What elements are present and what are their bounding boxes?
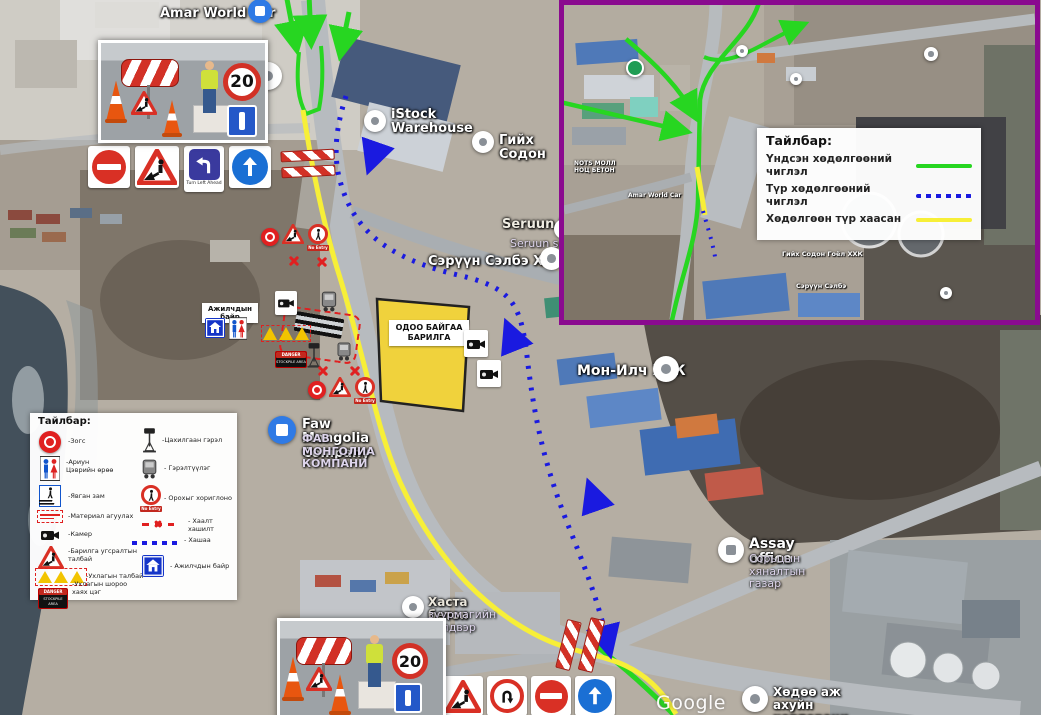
generator-icon <box>336 341 352 361</box>
poi-seruun-selbe-mn[interactable]: Сэрүүн Сэлбэ ХХК <box>428 250 564 269</box>
speed-limit-sign: 20 <box>223 63 261 101</box>
camera-icon <box>464 330 488 357</box>
legend-label: -Явган зам <box>68 493 105 501</box>
inset-poi-label: Гийх Содон Гоёл ХХК <box>782 251 863 258</box>
roadworks-sign <box>443 676 483 715</box>
workers-quarters-icon <box>142 555 164 577</box>
legend-label: -Камер <box>68 531 92 539</box>
worker-head <box>205 61 214 70</box>
flagger-worker <box>366 635 383 687</box>
poi-marker[interactable] <box>364 110 386 132</box>
ahead-only-icon <box>232 149 268 185</box>
material-storage-icon <box>37 510 63 523</box>
roadworks-sign-icon <box>282 224 304 244</box>
ahead-only-sign <box>575 676 615 715</box>
keep-right-sign <box>394 683 422 713</box>
legend-label: -Материал агуулах <box>68 513 133 521</box>
traffic-management-plan-map: Amar World Car iStock Warehouse Гийх Сод… <box>0 0 1041 715</box>
roadworks-icon <box>38 546 64 569</box>
hi-vis-vest <box>366 644 383 664</box>
building-icon <box>726 545 736 555</box>
blue-dotted-line-sample <box>916 194 972 198</box>
legend-label: - Хаалт хашилт <box>188 518 237 534</box>
green-line-sample <box>916 164 972 168</box>
poi-marker[interactable] <box>742 686 768 712</box>
google-watermark: Google <box>656 692 726 714</box>
camera-icon <box>275 291 297 315</box>
inset-legend-title: Тайлбар: <box>766 133 972 148</box>
stop-paddle-icon <box>39 431 61 453</box>
existing-building-label: ОДОО БАЙГАА БАРИЛГА <box>389 320 469 346</box>
poi-dot-icon <box>547 254 556 263</box>
poi-hasta-beton[interactable]: Хаста бетон зуурмагийн үйлдвэр <box>402 596 424 618</box>
barrier-line-icon <box>132 520 184 528</box>
roadworks-sign <box>135 146 179 188</box>
turn-left-icon <box>189 149 220 180</box>
inset-poi-marker[interactable] <box>790 73 802 85</box>
crosswalk-icon <box>39 485 61 507</box>
ahead-only-icon <box>578 679 612 713</box>
inset-poi-marker[interactable] <box>940 287 952 299</box>
legend-label: Түр хөдөлгөөний чиглэл <box>766 183 910 208</box>
map-legend-title: Тайлбар: <box>38 416 91 427</box>
light-tower-icon <box>142 427 157 453</box>
yellow-line-sample <box>916 218 972 222</box>
camera-icon <box>477 360 501 387</box>
legend-label: - Ажилчдын байр <box>170 563 229 571</box>
inset-detour-map: NOTS МОЛЛ НОЦ БЕТОН Amar World Car Гийх … <box>559 0 1040 325</box>
inset-poi-marker[interactable] <box>924 47 938 61</box>
poi-marker[interactable] <box>718 537 744 563</box>
poi-dot-icon <box>479 138 487 146</box>
no-entry-plate: No Entry <box>307 245 329 251</box>
traffic-cone-icon <box>161 99 183 137</box>
poi-label: Гийх Содон <box>499 134 546 163</box>
speed-limit-sign: 20 <box>392 643 428 679</box>
closure-x-mark <box>317 365 329 377</box>
barrier-bar <box>280 149 335 163</box>
speed-limit-value: 20 <box>399 652 421 671</box>
poi-amar-world-car[interactable]: Amar World Car <box>160 2 276 21</box>
fence-line-icon <box>132 541 178 545</box>
workers-quarters-sign-icon <box>205 318 225 338</box>
shopping-bag-icon <box>276 424 289 435</box>
site-photo-bottom: 20 <box>277 618 446 715</box>
legend-label: - Гэрэлтүүлэг <box>164 465 210 473</box>
camera-icon <box>40 527 60 543</box>
existing-building-shape <box>377 299 469 411</box>
sign-row-bottom <box>443 676 615 715</box>
no-entry-plate: No Entry <box>354 398 376 404</box>
legend-label: -Ариун Цэврийн өрөө <box>66 459 113 475</box>
traffic-cone-icon <box>103 79 129 123</box>
speed-limit-value: 20 <box>230 72 254 92</box>
inset-poi-marker[interactable] <box>626 59 644 77</box>
poi-sublabel: Сорьцын хяналтын газар <box>749 553 805 591</box>
inset-legend-row: Үндсэн хөдөлгөөний чиглэл <box>766 153 972 178</box>
no-entry-sign <box>88 146 130 188</box>
poi-label: Хөдөө аж ахуйн корпораци ТӨХХК <box>773 686 849 715</box>
roadworks-sign-icon <box>131 91 157 115</box>
no-pedestrian-icon <box>355 377 375 397</box>
worker-legs <box>368 663 381 687</box>
map-legend: Тайлбар: -Зогс -Ариун Цэврийн өрөө -Явга… <box>30 413 237 600</box>
legend-label: - Орохыг хориглоно <box>164 495 232 503</box>
closure-x-mark <box>316 256 328 268</box>
inset-legend-row: Хөдөлгөөн түр хаасан <box>766 213 972 226</box>
hi-vis-vest <box>201 70 218 90</box>
warning-triangle-icon <box>263 327 277 340</box>
inset-poi-marker[interactable] <box>736 45 748 57</box>
sign-cluster-top: No Entry <box>261 224 329 251</box>
stop-paddle-icon <box>261 228 279 246</box>
worker-head <box>370 635 379 644</box>
legend-label: -Барилга угсралтын талбай <box>68 548 137 564</box>
legend-label: Үндсэн хөдөлгөөний чиглэл <box>766 153 910 178</box>
poi-marker[interactable] <box>268 416 296 444</box>
inset-legend-row: Түр хөдөлгөөний чиглэл <box>766 183 972 208</box>
site-photo-top: 20 <box>98 40 268 143</box>
ahead-only-sign <box>229 146 271 188</box>
traffic-cone-icon <box>280 655 306 701</box>
poi-assay-office[interactable]: Assay office Сорьцын хяналтын газар <box>718 537 744 563</box>
roadworks-icon <box>445 680 481 713</box>
restroom-sign-icon <box>229 317 247 340</box>
poi-dot-icon <box>750 694 760 704</box>
restroom-icon <box>40 456 60 481</box>
poi-marker[interactable] <box>472 131 494 153</box>
no-u-turn-sign <box>487 676 527 715</box>
legend-label: -Цахилгаан гэрэл <box>162 437 222 445</box>
no-entry-icon <box>92 150 126 184</box>
closure-x-mark <box>288 255 300 267</box>
poi-mon-ilch[interactable]: Мон-Илч ХХК <box>577 360 686 379</box>
keep-right-sign <box>227 105 257 137</box>
legend-label: -Ухлагын шороо хаях цэг <box>72 581 127 597</box>
no-entry-sign <box>531 676 571 715</box>
turn-left-ahead-sign: Turn Left Ahead <box>184 146 224 192</box>
no-pedestrian-icon <box>308 224 328 244</box>
legend-label: - Хашаа <box>184 537 211 545</box>
briefcase-icon <box>255 6 266 16</box>
no-pedestrian-sign: No Entry <box>354 377 376 404</box>
chevron-board-icon <box>121 59 179 87</box>
inset-poi-label: Amar World Car <box>628 193 681 200</box>
poi-dot-icon <box>661 364 671 374</box>
poi-agro-corporation[interactable]: Хөдөө аж ахуйн корпораци ТӨХХК <box>742 686 768 712</box>
poi-marker[interactable] <box>248 0 272 23</box>
inset-poi-label: NOTS МОЛЛ НОЦ БЕТОН <box>574 161 616 175</box>
generator-icon <box>141 458 158 479</box>
stockpile-sign: DANGER STOCKPILE AREA <box>275 351 307 368</box>
poi-sublabel: ФАВ МОНГОЛИА КОМПАНИ <box>302 433 375 471</box>
no-entry-icon <box>535 680 568 713</box>
no-u-turn-icon <box>490 679 524 713</box>
poi-istock-warehouse[interactable]: iStock Warehouse <box>364 110 386 132</box>
traffic-cone-icon <box>328 673 352 715</box>
poi-giikh-sodon[interactable]: Гийх Содон <box>472 131 494 153</box>
excavation-area-triangles <box>261 325 311 342</box>
road-closure-barrier <box>280 149 335 179</box>
sign-cluster-bottom: No Entry <box>308 377 376 404</box>
roadworks-icon <box>137 149 177 185</box>
poi-marker[interactable] <box>653 356 679 382</box>
stockpile-icon: DANGER STOCKPILE AREA <box>38 588 68 609</box>
flagger-worker <box>201 61 218 113</box>
warning-triangle-icon <box>295 327 309 340</box>
closure-x-mark <box>349 365 361 377</box>
warning-triangle-icon <box>279 327 293 340</box>
inset-legend: Тайлбар: Үндсэн хөдөлгөөний чиглэл Түр х… <box>757 128 981 240</box>
stockpile-text: STOCKPILE AREA <box>276 358 306 367</box>
poi-dot-icon <box>409 603 417 611</box>
roadworks-sign-icon <box>329 377 351 397</box>
inset-poi-label: Сэрүүн Сэлбэ <box>796 283 846 290</box>
poi-marker[interactable] <box>402 596 424 618</box>
stop-paddle-icon <box>308 381 326 399</box>
no-pedestrian-icon: No Entry <box>140 485 162 512</box>
no-pedestrian-sign: No Entry <box>307 224 329 251</box>
poi-label: iStock Warehouse <box>391 108 473 137</box>
worker-legs <box>203 89 216 113</box>
sign-row-top: Turn Left Ahead <box>88 146 271 192</box>
legend-label: Хөдөлгөөн түр хаасан <box>766 213 901 226</box>
poi-dot-icon <box>371 117 379 125</box>
workers-quarters-annotation: Ажилчдын байр <box>202 303 258 323</box>
generator-icon <box>320 290 338 312</box>
poi-faw-mongolia[interactable]: Faw Mongolia Company ФАВ МОНГОЛИА КОМПАН… <box>268 416 296 444</box>
legend-label: -Зогс <box>68 438 85 446</box>
turn-left-caption: Turn Left Ahead <box>186 182 221 187</box>
